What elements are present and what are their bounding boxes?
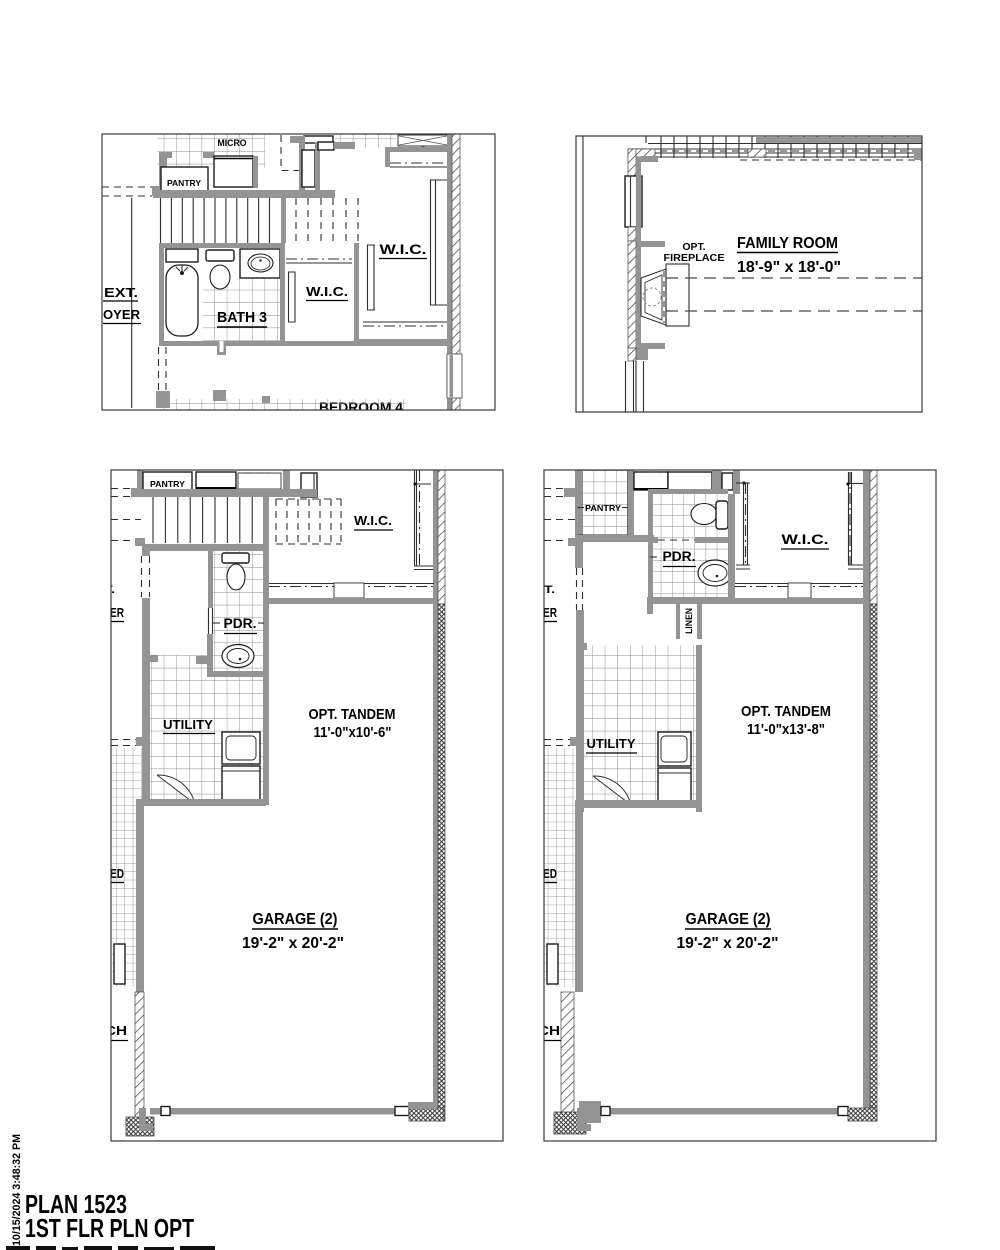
svg-text:11'-0"x13'-8": 11'-0"x13'-8" — [747, 721, 825, 738]
svg-text:UTILITY: UTILITY — [587, 736, 636, 751]
svg-text:GARAGE (2): GARAGE (2) — [253, 911, 338, 928]
svg-text:GARAGE (2): GARAGE (2) — [686, 911, 771, 928]
svg-text:PANTRY: PANTRY — [167, 178, 201, 188]
svg-text:ED: ED — [543, 866, 557, 881]
svg-text:T.: T. — [544, 584, 555, 596]
svg-text:OPT. TANDEM: OPT. TANDEM — [309, 706, 396, 723]
svg-text:18'-9" x 18'-0": 18'-9" x 18'-0" — [737, 259, 841, 276]
svg-text:UTILITY: UTILITY — [163, 717, 213, 732]
svg-text:19'-2" x 20'-2": 19'-2" x 20'-2" — [242, 935, 344, 952]
svg-text:PANTRY: PANTRY — [585, 503, 621, 513]
svg-text:BATH 3: BATH 3 — [217, 309, 267, 326]
svg-text:1ST FLR PLN OPT: 1ST FLR PLN OPT — [25, 1213, 194, 1243]
svg-text:PDR.: PDR. — [663, 549, 696, 564]
svg-text:OPT.: OPT. — [683, 242, 706, 253]
svg-text:W.I.C.: W.I.C. — [782, 531, 829, 547]
svg-text:ER: ER — [543, 605, 557, 620]
svg-text:FAMILY ROOM: FAMILY ROOM — [737, 235, 838, 252]
svg-text:LINEN: LINEN — [684, 608, 694, 634]
svg-text:11'-0"x10'-6": 11'-0"x10'-6" — [314, 724, 392, 741]
svg-text:PDR.: PDR. — [224, 616, 257, 631]
svg-text:OPT. TANDEM: OPT. TANDEM — [741, 703, 831, 720]
svg-text:10/15/2024 3:48:32 PM: 10/15/2024 3:48:32 PM — [11, 1134, 23, 1246]
svg-text:OYER: OYER — [103, 307, 141, 322]
svg-text:ER: ER — [110, 605, 124, 620]
svg-text:W.I.C.: W.I.C. — [354, 513, 392, 528]
svg-text:PANTRY: PANTRY — [150, 479, 185, 489]
svg-text:W.I.C.: W.I.C. — [306, 284, 348, 299]
svg-text:ED: ED — [110, 866, 124, 881]
svg-text:19'-2" x 20'-2": 19'-2" x 20'-2" — [677, 935, 779, 952]
svg-text:EXT.: EXT. — [104, 285, 138, 300]
svg-text:MICRO: MICRO — [218, 138, 247, 148]
svg-text:FIREPLACE: FIREPLACE — [664, 253, 725, 264]
svg-text:W.I.C.: W.I.C. — [380, 241, 427, 257]
